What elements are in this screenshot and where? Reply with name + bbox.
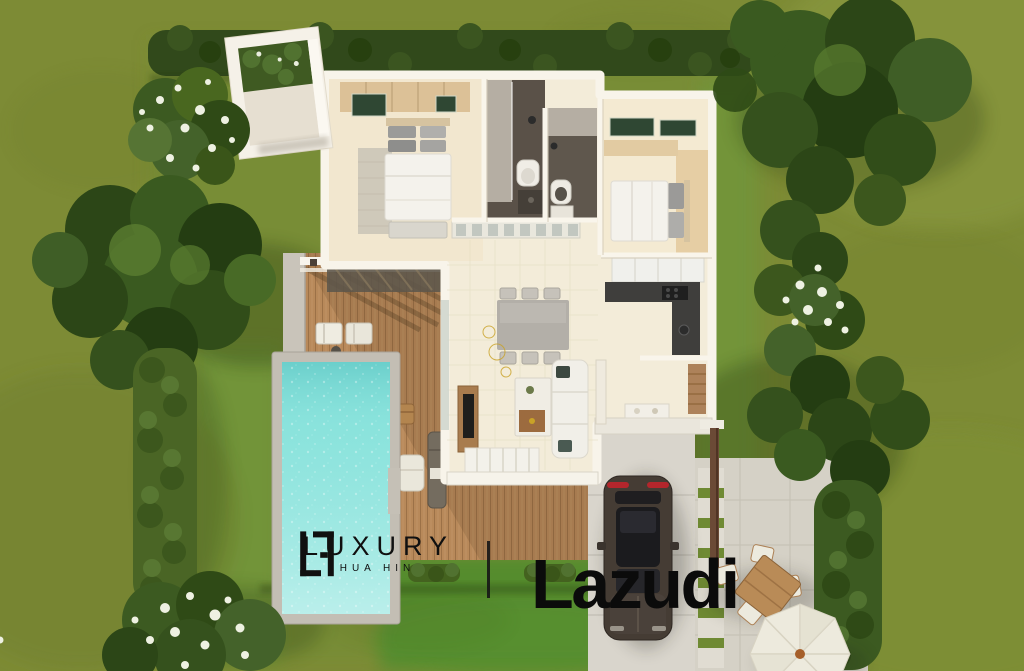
villa-aerial-render: LUXURY HUA HIN Lazudi [0,0,1024,671]
entry-porch [595,418,712,434]
shower-head [528,116,536,124]
swimming-pool [272,352,400,624]
lazudi-watermark: Lazudi [531,549,738,619]
window-bench [465,448,539,474]
kitchen-island [515,378,551,436]
kitchen-sink [679,325,689,335]
living-window-band [441,300,449,430]
car-sunroof [620,511,656,533]
sofa [552,360,588,458]
plant [526,386,534,394]
skylight [660,120,696,136]
pool-ledge [388,468,400,514]
hedge-strip-left [133,348,197,610]
skylight [436,96,456,112]
bathroom-2 [545,108,597,220]
dining-chairs-top [500,288,560,299]
sun-lounger [346,323,372,344]
slat-screen [596,360,606,424]
throw-pillow [558,440,572,452]
shower-marble-wall [484,80,512,202]
hallway-skylight-band [452,222,580,238]
shower-marble-wall-2 [545,108,597,136]
luxury-hua-hin-watermark: LUXURY HUA HIN [297,531,453,574]
skylight [352,94,386,116]
luxury-hua-hin-monogram-icon [297,531,337,583]
umbrella-pole [795,649,805,659]
vanity-white [551,206,573,218]
wardrobe-2 [604,140,678,156]
bathroom-1 [484,80,545,220]
stove [662,286,688,300]
dining-chairs-bottom [500,352,560,364]
console-table [625,404,669,418]
scene-canvas [0,0,1024,671]
pergola-post [310,259,317,266]
car-headlight-left [610,626,624,631]
bed-bench [389,222,447,238]
bedroom-2 [601,99,708,255]
luxury-location-text: HUA HIN [335,563,416,574]
throw-pillow [556,366,570,378]
sliding-door-threshold [447,472,598,485]
wood-wall-panel [688,364,706,414]
shower-head [551,143,558,150]
watermark-divider [487,541,490,598]
car-headlight-right [652,626,666,631]
car-taillight-left [607,482,629,488]
car-taillight-right [647,482,669,488]
tv-console [458,386,478,452]
tv-screen [463,394,474,438]
car-rear-window [615,491,661,504]
sun-lounger [316,323,342,344]
pool-chair-white [398,455,424,491]
skylight [610,118,654,136]
